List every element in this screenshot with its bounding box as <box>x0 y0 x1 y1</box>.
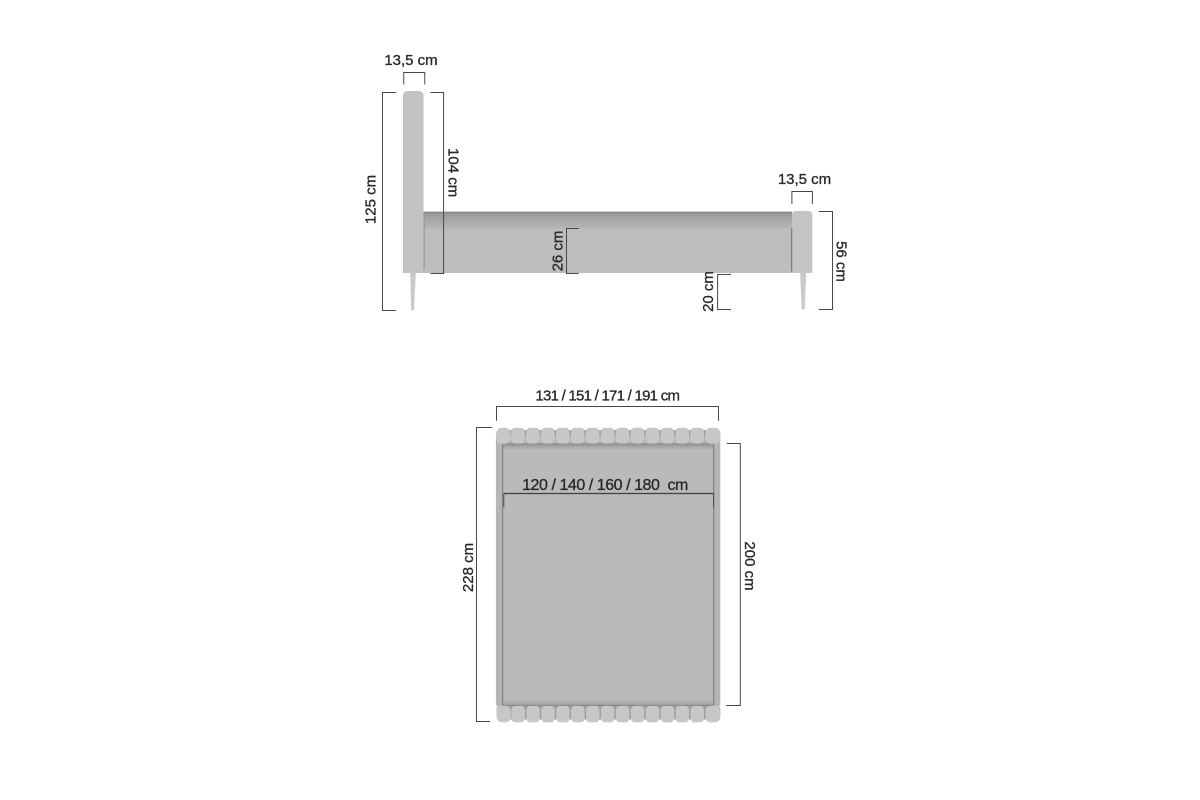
svg-text:131 / 151 / 171 / 191 cm: 131 / 151 / 171 / 191 cm <box>535 388 679 405</box>
svg-text:26 cm: 26 cm <box>550 231 567 272</box>
svg-text:56 cm: 56 cm <box>833 241 850 282</box>
svg-text:228 cm: 228 cm <box>460 543 477 592</box>
svg-text:13,5 cm: 13,5 cm <box>778 171 831 188</box>
svg-text:120 / 140 / 160 / 180 cm: 120 / 140 / 160 / 180 cm <box>522 477 688 494</box>
svg-text:20 cm: 20 cm <box>700 271 717 312</box>
svg-text:13,5 cm: 13,5 cm <box>384 52 437 69</box>
svg-text:125 cm: 125 cm <box>363 175 380 224</box>
svg-text:200 cm: 200 cm <box>741 541 758 590</box>
svg-text:104 cm: 104 cm <box>444 148 461 197</box>
